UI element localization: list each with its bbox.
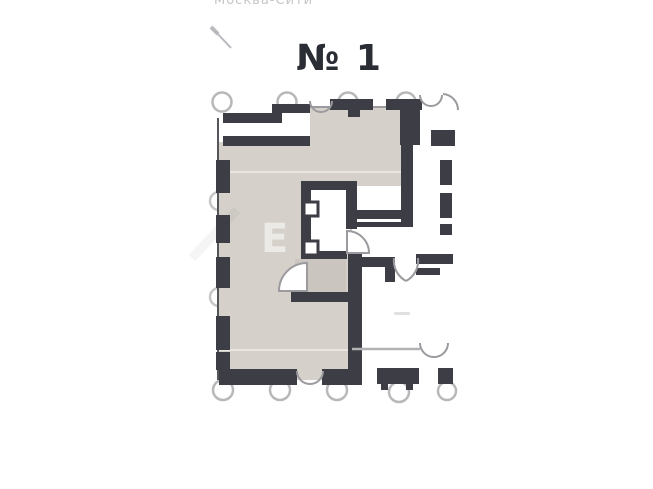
watermark-letter: Е bbox=[261, 216, 288, 262]
faint-annotation bbox=[394, 312, 410, 315]
floorplan-drawing: Е bbox=[0, 0, 653, 489]
floorplan-canvas: Москва-Сити № 1 268,9 bbox=[0, 0, 653, 489]
shaft-box bbox=[304, 241, 318, 255]
facade-notch bbox=[226, 122, 310, 137]
shaft-box bbox=[304, 202, 318, 216]
north-arrow-icon bbox=[211, 27, 231, 48]
